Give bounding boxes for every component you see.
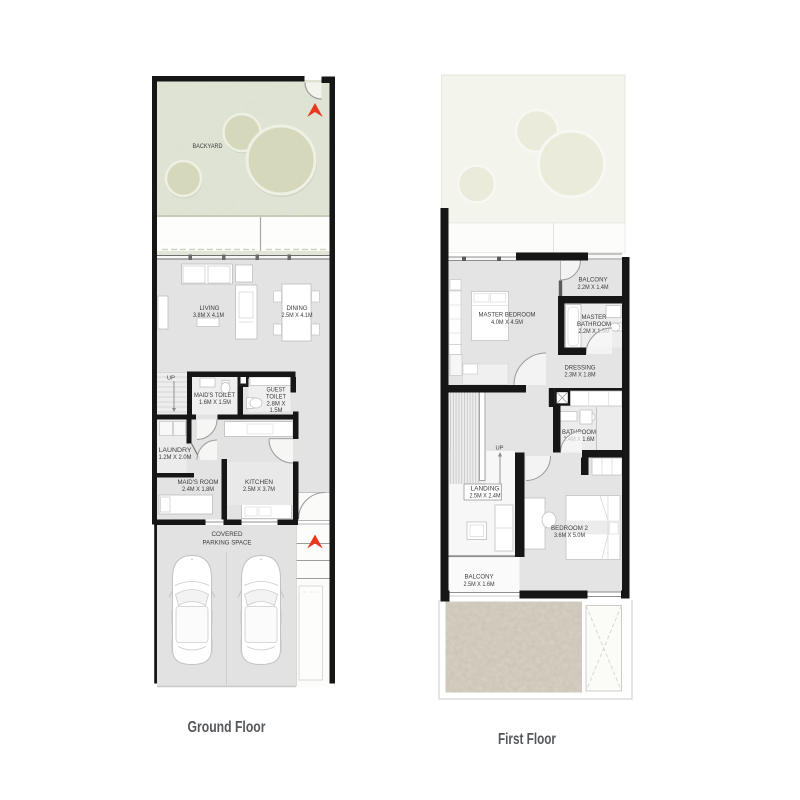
svg-text:1.6M X 1.5M: 1.6M X 1.5M [199, 399, 231, 406]
svg-text:MASTER: MASTER [582, 314, 608, 321]
svg-text:2.5M X 3.7M: 2.5M X 3.7M [243, 486, 275, 493]
svg-text:2.2M X 1.4M: 2.2M X 1.4M [578, 284, 609, 291]
svg-text:2.3M X 1.8M: 2.3M X 1.8M [565, 372, 596, 379]
svg-text:BATHROOM: BATHROOM [577, 321, 611, 328]
svg-text:4.0M X 4.5M: 4.0M X 4.5M [491, 319, 523, 326]
svg-text:BALCONY: BALCONY [579, 277, 608, 284]
svg-text:TOILET: TOILET [266, 394, 286, 401]
svg-text:LAUNDRY: LAUNDRY [159, 447, 192, 454]
svg-text:KITCHEN: KITCHEN [245, 479, 273, 486]
svg-text:First Floor: First Floor [498, 731, 556, 748]
svg-text:DINING: DINING [287, 305, 308, 312]
svg-text:Ground Floor: Ground Floor [188, 719, 266, 736]
svg-text:BACKYARD: BACKYARD [193, 143, 223, 150]
svg-text:2.4M X 1.8M: 2.4M X 1.8M [182, 486, 214, 493]
svg-text:MASTER BEDROOM: MASTER BEDROOM [479, 312, 536, 319]
svg-text:2.5M X 2.4M: 2.5M X 2.4M [470, 493, 501, 500]
svg-text:UP: UP [496, 446, 504, 452]
svg-text:3.8M X 4.1M: 3.8M X 4.1M [193, 312, 224, 319]
svg-text:COVERED: COVERED [212, 531, 243, 538]
svg-text:MAID'S ROOM: MAID'S ROOM [178, 479, 219, 486]
svg-text:GUEST: GUEST [267, 387, 286, 394]
svg-text:LIVING: LIVING [200, 305, 220, 312]
svg-text:BEDROOM 2: BEDROOM 2 [551, 525, 589, 532]
svg-text:BALCONY: BALCONY [465, 574, 494, 581]
svg-text:3.6M X 5.0M: 3.6M X 5.0M [554, 532, 585, 539]
svg-text:MAID'S TOILET: MAID'S TOILET [194, 392, 235, 399]
svg-text:2.5M X 4.1M: 2.5M X 4.1M [282, 312, 313, 319]
svg-text:2.5M X 1.6M: 2.5M X 1.6M [464, 581, 495, 588]
svg-text:LANDING: LANDING [471, 486, 500, 493]
svg-text:UP: UP [167, 376, 175, 382]
svg-text:DRESSING: DRESSING [565, 365, 596, 372]
svg-text:PARKING SPACE: PARKING SPACE [203, 540, 252, 547]
svg-text:1.2M X 2.0M: 1.2M X 2.0M [159, 454, 192, 461]
svg-text:1.5M: 1.5M [270, 407, 283, 414]
